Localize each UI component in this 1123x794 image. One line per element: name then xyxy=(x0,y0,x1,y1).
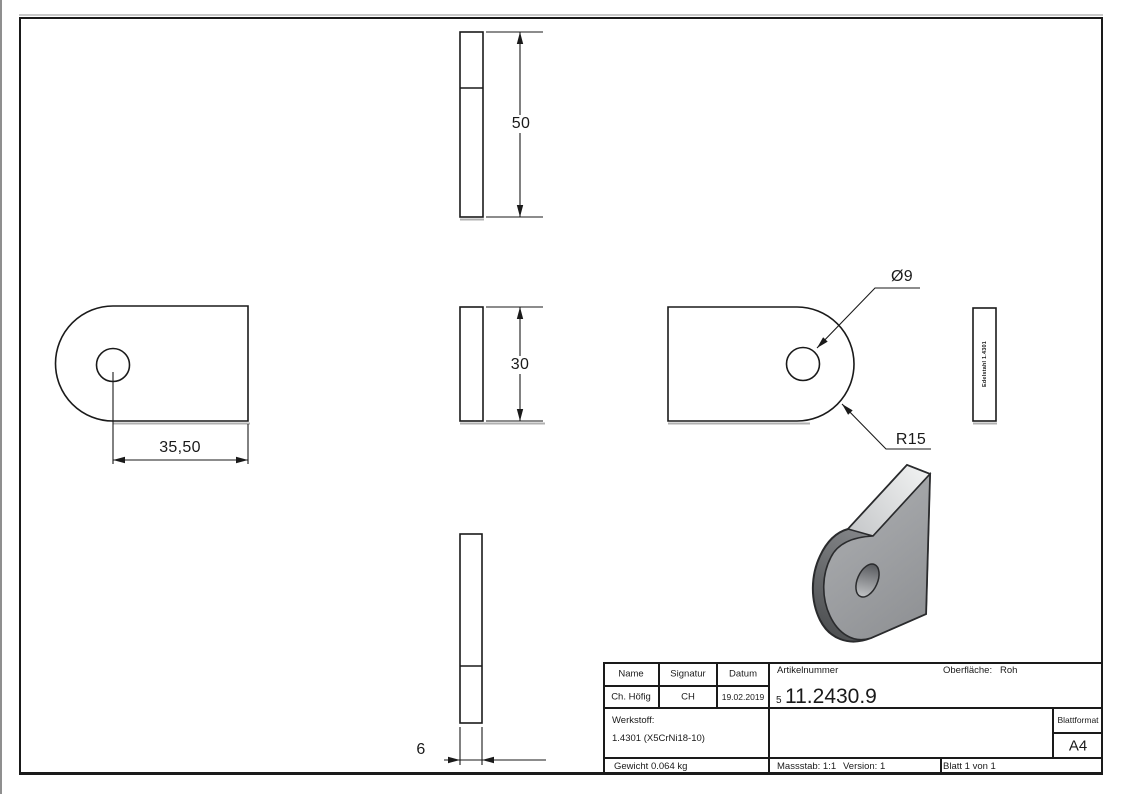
view-side-middle xyxy=(460,307,483,421)
tb-blatt: Blatt 1 von 1 xyxy=(943,761,996,772)
view-front-right xyxy=(668,307,854,421)
hole-front-right xyxy=(787,348,820,381)
dim-side-height-label: 50 xyxy=(509,115,533,133)
drawing-sheet: 50 30 35,50 6 Ø9 R15 Edelstahl 1.4301 Na… xyxy=(0,0,1123,794)
dim-corner-radius-label: R15 xyxy=(896,431,926,449)
tb-artikelnummer-prefix: 5 xyxy=(776,695,782,706)
title-block-divider xyxy=(940,758,942,773)
tb-werkstoff-label: Werkstoff: xyxy=(612,715,654,726)
tb-col-datum: Datum xyxy=(729,669,757,680)
tb-name-value: Ch. Höfig xyxy=(611,692,651,703)
view-side-bottom xyxy=(460,534,482,723)
dim-hole-diameter-label: Ø9 xyxy=(891,268,913,286)
tb-col-signatur: Signatur xyxy=(670,669,705,680)
dim-front-height-label: 30 xyxy=(508,356,532,374)
tb-col-name: Name xyxy=(618,669,643,680)
tb-signatur-value: CH xyxy=(681,692,695,703)
tb-version: Version: 1 xyxy=(843,761,885,772)
dim-thickness-label: 6 xyxy=(416,741,425,759)
title-block-divider xyxy=(603,685,769,687)
tb-massstab: Massstab: 1:1 xyxy=(777,761,836,772)
view-side-top xyxy=(460,32,483,217)
tb-datum-value: 19.02.2019 xyxy=(722,692,765,702)
title-block-divider xyxy=(603,757,1103,759)
tb-gewicht: Gewicht 0.064 kg xyxy=(614,761,687,772)
dim-6-lines xyxy=(444,727,546,765)
tb-artikelnummer-label: Artikelnummer xyxy=(777,665,838,676)
view-front-left xyxy=(55,306,248,421)
tb-oberflaeche-value: Roh xyxy=(1000,665,1017,676)
tb-oberflaeche-label: Oberfläche: xyxy=(943,665,992,676)
tb-blattformat-value: A4 xyxy=(1069,738,1087,755)
tb-artikelnummer-value: 11.2430.9 xyxy=(785,686,877,707)
view-iso-3d xyxy=(813,465,930,642)
vertical-marking-text: Edelstahl 1.4301 xyxy=(982,341,988,387)
dim-hole-to-edge-label: 35,50 xyxy=(159,439,201,457)
tb-werkstoff-value: 1.4301 (X5CrNi18-10) xyxy=(612,733,705,744)
title-block-divider xyxy=(1052,732,1103,734)
tb-blattformat-label: Blattformat xyxy=(1057,715,1098,725)
